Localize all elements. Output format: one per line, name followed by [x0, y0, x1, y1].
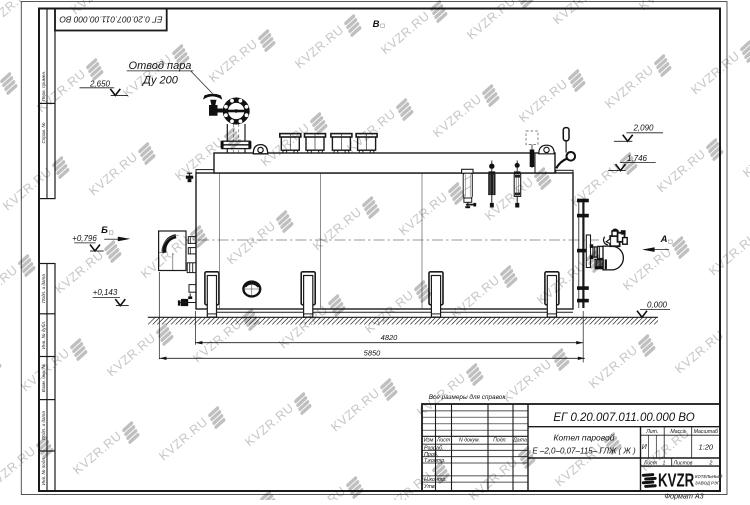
svg-text:Разраб.: Разраб.	[424, 445, 444, 451]
svg-text:N докум.: N докум.	[459, 438, 480, 444]
svg-text:Формат А3: Формат А3	[664, 491, 703, 500]
svg-text:5850: 5850	[364, 348, 382, 357]
svg-text:Подп.: Подп.	[493, 438, 507, 444]
svg-text:КОТЕЛЬНЫЙ: КОТЕЛЬНЫЙ	[695, 474, 723, 479]
svg-text:ЗАВОД РЭП: ЗАВОД РЭП	[695, 481, 721, 486]
svg-text:Лист: Лист	[436, 438, 451, 444]
svg-text:Листов: Листов	[673, 460, 693, 466]
svg-text:Подп. и дата: Подп. и дата	[41, 411, 46, 440]
svg-text:Проб.: Проб.	[424, 452, 438, 458]
svg-text:Масштаб: Масштаб	[694, 429, 719, 435]
svg-text:1: 1	[663, 460, 666, 466]
svg-text:ЕГ 0.20.007.011.00.000 ВО: ЕГ 0.20.007.011.00.000 ВО	[553, 412, 694, 424]
svg-text:Дата: Дата	[512, 438, 527, 444]
svg-text:+0,143: +0,143	[93, 288, 118, 297]
svg-text:А: А	[660, 234, 668, 245]
svg-text:2: 2	[709, 460, 713, 466]
svg-text:Б: Б	[101, 225, 108, 236]
svg-text:1:20: 1:20	[698, 443, 713, 452]
svg-text:+0,796: +0,796	[72, 234, 97, 243]
svg-text:Инв. № подл.: Инв. № подл.	[41, 457, 46, 486]
svg-text:4820: 4820	[381, 333, 399, 342]
svg-text:Изм: Изм	[424, 438, 434, 444]
svg-text:Справ. №: Справ. №	[41, 123, 46, 144]
svg-text:KVZR: KVZR	[658, 470, 695, 491]
svg-text:0,000: 0,000	[647, 300, 668, 309]
svg-text:2,090: 2,090	[632, 124, 654, 133]
svg-text:ЕГ 0.20.007.011.00.000 ВО: ЕГ 0.20.007.011.00.000 ВО	[59, 14, 162, 24]
svg-text:Подп. и дата: Подп. и дата	[41, 274, 46, 303]
svg-text:Лит.: Лит.	[645, 429, 658, 435]
svg-text:Инв. № дубл.: Инв. № дубл.	[41, 321, 46, 349]
svg-text:2,650: 2,650	[89, 79, 111, 88]
svg-text:В: В	[373, 19, 380, 30]
